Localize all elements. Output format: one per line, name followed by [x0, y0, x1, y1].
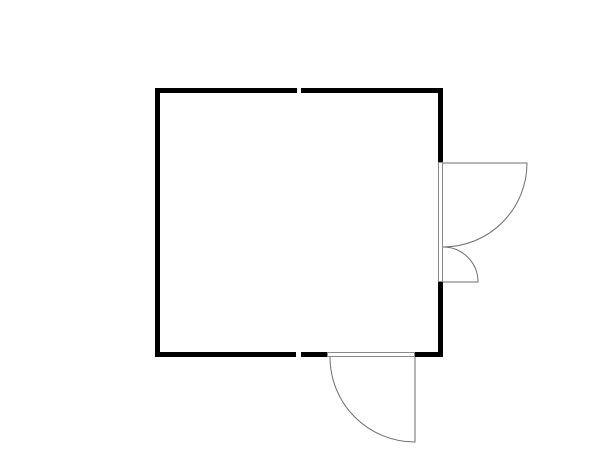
bottom-door-leaf — [330, 357, 415, 442]
floor-plan-canvas — [0, 0, 600, 450]
right-door-frame — [439, 163, 443, 282]
bottom-door-frame — [328, 353, 415, 357]
right-door-leaf-large — [443, 163, 527, 247]
room-walls — [155, 88, 443, 357]
room — [155, 88, 443, 357]
floor-plan-drawing — [0, 0, 600, 450]
bottom-door — [328, 353, 416, 443]
right-door-leaf-small — [443, 247, 478, 282]
right-double-door — [439, 163, 528, 283]
